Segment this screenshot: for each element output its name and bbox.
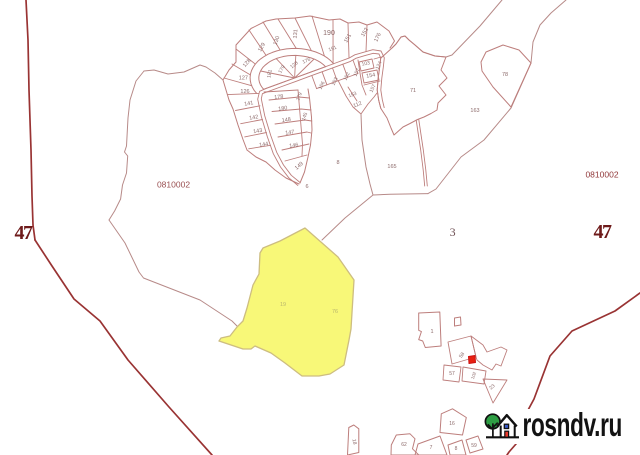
svg-text:19: 19 bbox=[280, 302, 286, 308]
svg-text:3: 3 bbox=[450, 225, 456, 239]
svg-text:0810002: 0810002 bbox=[585, 170, 618, 180]
svg-text:0810002: 0810002 bbox=[157, 180, 190, 190]
svg-text:178: 178 bbox=[274, 94, 284, 101]
svg-text:146: 146 bbox=[289, 142, 299, 149]
svg-text:131: 131 bbox=[293, 29, 300, 39]
svg-text:71: 71 bbox=[410, 88, 416, 94]
svg-text:126: 126 bbox=[240, 89, 249, 95]
svg-text:rosndv.ru: rosndv.ru bbox=[523, 407, 623, 445]
svg-text:62: 62 bbox=[401, 442, 407, 448]
svg-text:78: 78 bbox=[502, 72, 508, 78]
svg-text:148: 148 bbox=[281, 117, 291, 124]
svg-text:190: 190 bbox=[323, 30, 335, 37]
svg-text:47: 47 bbox=[594, 221, 613, 243]
svg-text:57: 57 bbox=[449, 371, 455, 377]
svg-text:8: 8 bbox=[455, 446, 458, 452]
svg-text:16: 16 bbox=[449, 421, 455, 427]
svg-text:47: 47 bbox=[15, 222, 34, 244]
svg-text:1: 1 bbox=[430, 329, 433, 335]
svg-text:59: 59 bbox=[471, 443, 477, 449]
svg-text:165: 165 bbox=[387, 164, 396, 170]
svg-text:6: 6 bbox=[305, 184, 308, 190]
svg-text:76: 76 bbox=[332, 309, 338, 315]
svg-text:8: 8 bbox=[336, 160, 339, 166]
svg-text:7: 7 bbox=[430, 445, 433, 451]
svg-text:147: 147 bbox=[285, 129, 295, 136]
svg-text:180: 180 bbox=[278, 105, 288, 112]
svg-text:127: 127 bbox=[239, 76, 248, 82]
svg-text:163: 163 bbox=[470, 108, 479, 114]
